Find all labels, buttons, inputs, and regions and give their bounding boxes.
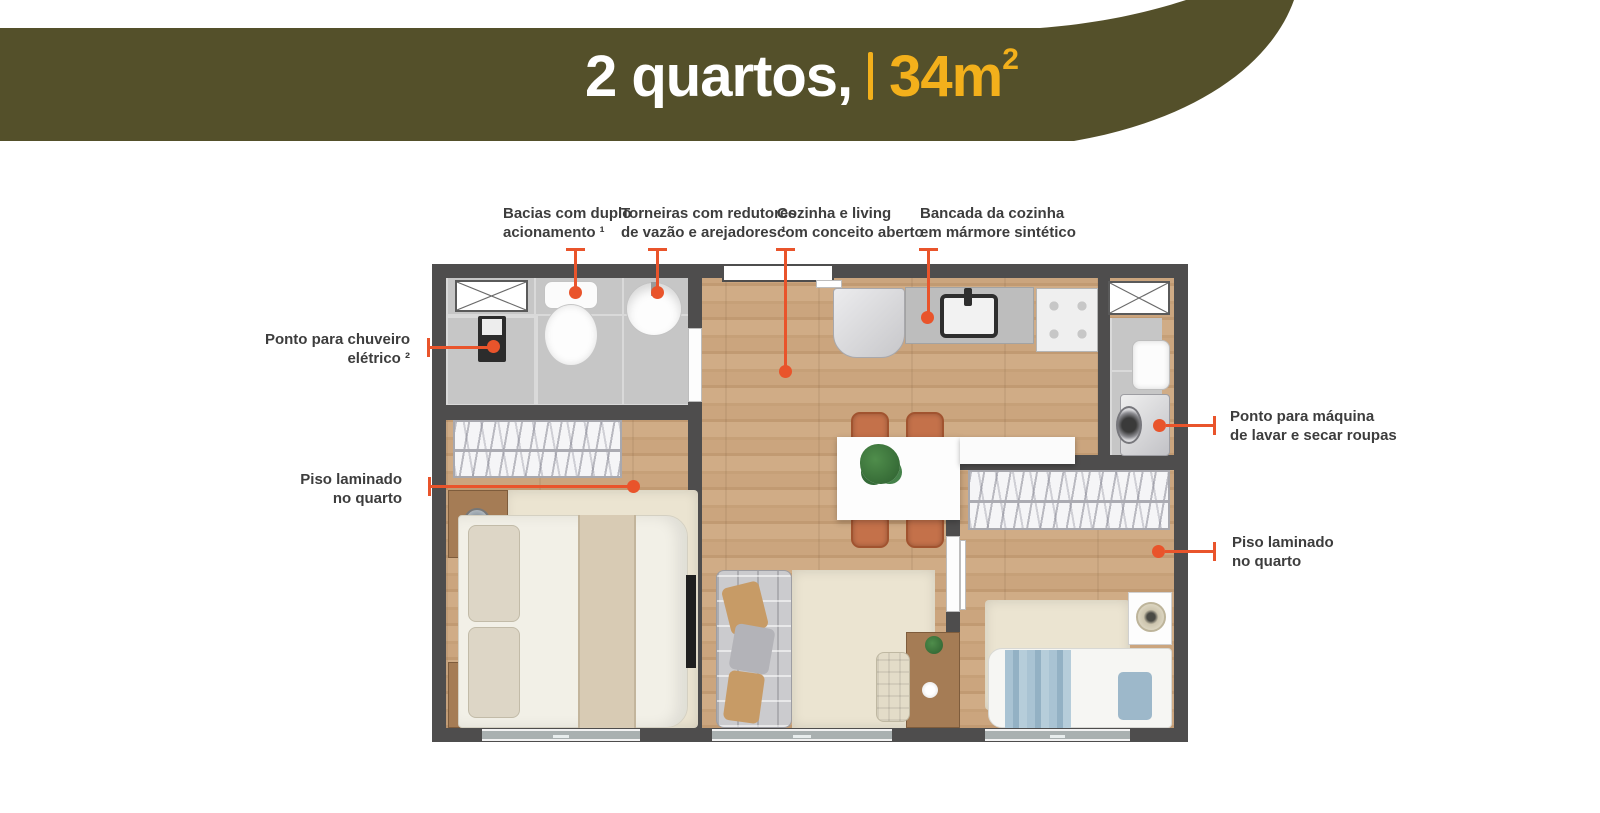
tv-panel-icon [686,575,696,668]
wardrobe-icon [453,420,622,478]
wall-bathroom-bedroom1 [432,405,702,420]
nightstand-lamp [1136,602,1166,632]
entry-door-leaf [816,280,842,288]
callout-torneiras-line1: Torneiras com redutores [621,204,797,223]
callout-piso-esquerda-line1: Piso laminado [230,470,402,489]
callout-piso-direita-line1: Piso laminado [1232,533,1334,552]
bed-blue-blanket [1005,650,1071,728]
shaft-box-icon [455,280,528,312]
callout-chuveiro-line1: Ponto para chuveiro [240,330,410,349]
bed-blue-pillow [1118,672,1152,720]
sofa-cushion [728,623,775,675]
callout-piso-direita-dot [1152,545,1165,558]
title-divider [868,52,873,100]
pouf-icon [876,652,910,722]
floorplan-page: 2 quartos, 34m2 [0,0,1600,813]
callout-torneiras: Torneiras com redutores de vazão e areja… [621,204,797,242]
kitchen-faucet [964,288,972,306]
callout-cozinha: Cozinha e living com conceito aberto [777,204,924,242]
callout-bancada-line [927,250,930,318]
window-living [712,729,892,741]
callout-torneiras-dot [651,286,664,299]
callout-piso-esquerda-line [430,485,634,488]
desk-deco-flower [922,682,938,698]
shaft-box-icon [1108,281,1170,315]
toilet-bowl-icon [544,304,598,366]
bed-throw-blanket [578,515,636,728]
callout-bancada-line1: Bancada da cozinha [920,204,1076,223]
callout-bacias-line2: acionamento ¹ [503,223,631,242]
callout-bacias-line1: Bacias com duplo [503,204,631,223]
callout-chuveiro-dot [487,340,500,353]
callout-cozinha-dot [779,365,792,378]
callout-bacias-dot [569,286,582,299]
callout-chuveiro: Ponto para chuveiro elétrico ² [240,330,410,368]
bedroom2-door-leaf [960,540,966,610]
callout-bancada: Bancada da cozinha em mármore sintético [920,204,1076,242]
callout-piso-direita-line [1165,550,1215,553]
callout-maquina-line1: Ponto para máquina [1230,407,1397,426]
callout-cozinha-line [784,250,787,372]
desk-plant-icon [925,636,943,654]
callout-bancada-dot [921,311,934,324]
callout-cozinha-line2: com conceito aberto [777,223,924,242]
bathroom-door-opening [688,328,702,402]
area-value: 34m2 [889,43,1018,110]
plant-icon [860,444,900,484]
callout-piso-direita: Piso laminado no quarto [1232,533,1334,571]
callout-bacias: Bacias com duplo acionamento ¹ [503,204,631,242]
callout-chuveiro-line [429,346,494,349]
stove-icon [1036,288,1098,352]
sideboard-counter [960,437,1075,464]
window-bedroom1 [482,729,640,741]
dining-table [837,437,960,520]
wardrobe-icon [968,470,1170,530]
callout-maquina-line [1166,424,1215,427]
laundry-tub-icon [1132,340,1170,390]
bedroom2-door-opening [946,536,960,612]
callout-chuveiro-line2: elétrico ² [240,349,410,368]
floor-plan [432,264,1188,742]
bathroom-tile-seam-v [536,316,538,406]
bed-pillow [468,525,520,622]
shower-point-head [482,319,502,335]
fridge-icon [833,288,905,358]
callout-maquina-dot [1153,419,1166,432]
callout-bancada-line2: em mármore sintético [920,223,1076,242]
area-number: 34m [889,43,1002,110]
callout-cozinha-line1: Cozinha e living [777,204,924,223]
washing-machine-door [1116,406,1142,444]
page-title: 2 quartos, [585,43,852,110]
callout-maquina-line2: de lavar e secar roupas [1230,426,1397,445]
callout-piso-esquerda-dot [627,480,640,493]
bed-pillow [468,627,520,718]
window-bedroom2 [985,729,1130,741]
area-superscript: 2 [1002,45,1018,75]
header-title-group: 2 quartos, 34m2 [585,40,1018,112]
callout-piso-direita-line2: no quarto [1232,552,1334,571]
sofa-cushion [723,670,766,725]
callout-piso-esquerda-line2: no quarto [230,489,402,508]
callout-piso-esquerda: Piso laminado no quarto [230,470,402,508]
callout-maquina: Ponto para máquina de lavar e secar roup… [1230,407,1397,445]
callout-torneiras-line2: de vazão e arejadores ¹ [621,223,797,242]
